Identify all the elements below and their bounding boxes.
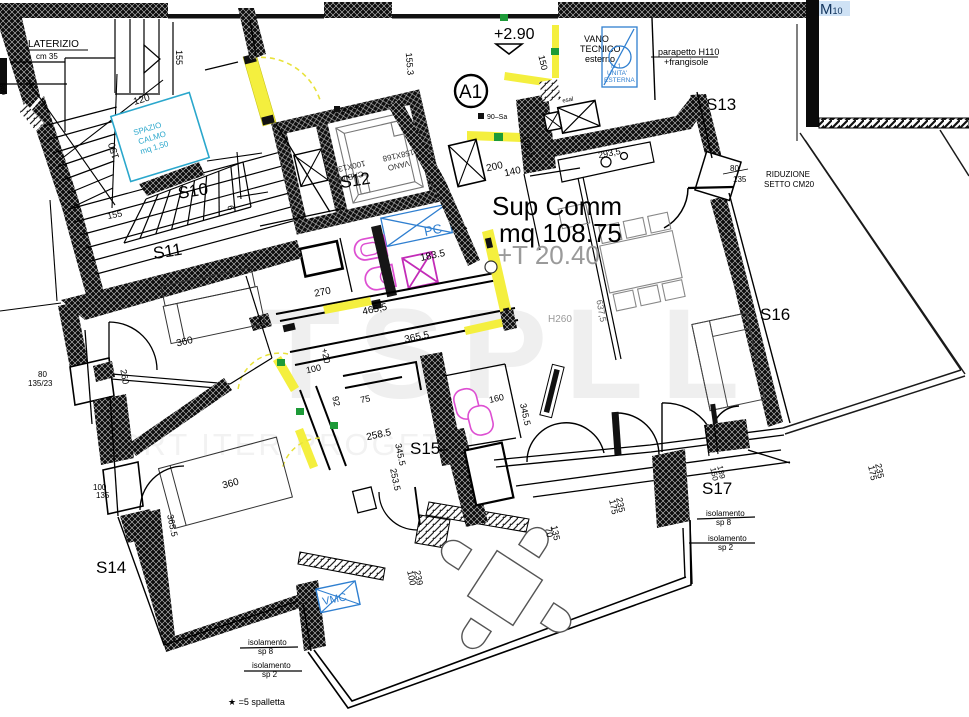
svg-text:S15: S15 (410, 439, 440, 458)
svg-text:sp 8: sp 8 (258, 647, 274, 656)
svg-text:H260: H260 (548, 314, 572, 325)
svg-text:+2.90: +2.90 (494, 26, 535, 43)
svg-text:isolamento: isolamento (706, 509, 745, 518)
svg-text:+frangisole: +frangisole (664, 57, 708, 67)
svg-text:★ =5 spalletta: ★ =5 spalletta (228, 697, 285, 707)
svg-text:+T 20.40: +T 20.40 (497, 240, 600, 270)
svg-text:135/23: 135/23 (28, 379, 53, 388)
svg-text:92: 92 (330, 395, 342, 407)
svg-text:90–Sa: 90–Sa (487, 114, 507, 121)
svg-text:S16: S16 (760, 305, 790, 324)
svg-text:S13: S13 (706, 95, 736, 114)
svg-text:155.3: 155.3 (404, 52, 416, 75)
svg-text:S17: S17 (702, 479, 732, 498)
svg-text:cm 35: cm 35 (36, 52, 58, 61)
svg-text:LATERIZIO: LATERIZIO (28, 39, 79, 50)
svg-text:isolamento: isolamento (252, 661, 291, 670)
svg-text:sp 8: sp 8 (716, 518, 732, 527)
svg-text:ESTERNA: ESTERNA (604, 77, 635, 84)
svg-text:isolamento: isolamento (708, 534, 747, 543)
svg-text:TECNICO: TECNICO (580, 44, 621, 54)
svg-text:VANO: VANO (584, 34, 609, 44)
svg-text:sp 2: sp 2 (718, 543, 734, 552)
svg-text:UNITA': UNITA' (607, 70, 627, 77)
svg-text:75: 75 (359, 393, 371, 405)
svg-text:A1: A1 (459, 82, 482, 103)
svg-text:135: 135 (96, 491, 110, 500)
svg-text:80: 80 (38, 370, 47, 379)
svg-text:155: 155 (174, 50, 184, 65)
svg-text:S14: S14 (96, 558, 126, 577)
svg-text:Sup Comm: Sup Comm (492, 191, 622, 221)
svg-text:135: 135 (733, 175, 747, 184)
svg-text:isolamento: isolamento (248, 638, 287, 647)
svg-text:SETTO CM20: SETTO CM20 (764, 180, 815, 189)
svg-text:RIDUZIONE: RIDUZIONE (766, 170, 810, 179)
svg-text:N.1: N.1 (611, 63, 622, 70)
svg-text:parapetto H110: parapetto H110 (658, 47, 719, 57)
